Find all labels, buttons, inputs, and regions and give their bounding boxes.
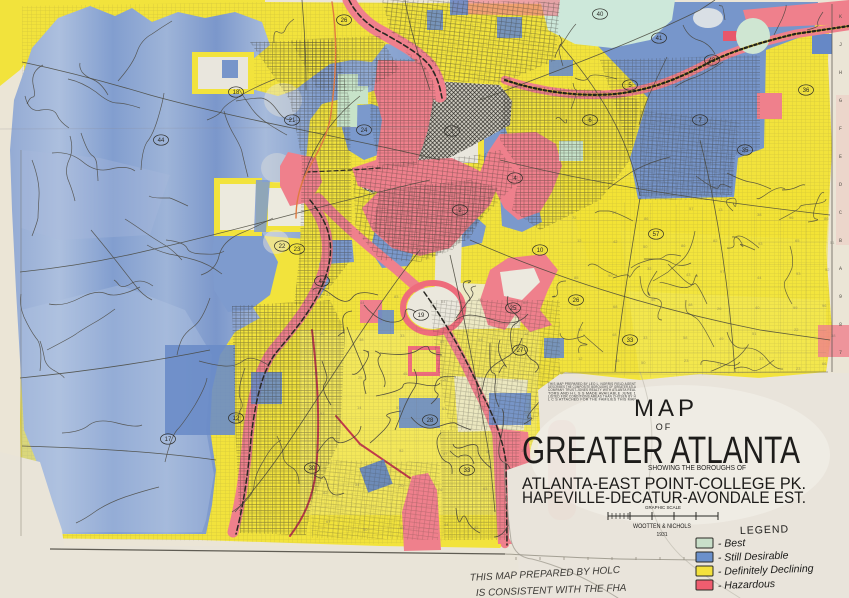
svg-text:93: 93 <box>758 241 763 246</box>
svg-text:56: 56 <box>651 297 656 302</box>
svg-text:40: 40 <box>755 305 760 310</box>
svg-text:47: 47 <box>486 449 491 454</box>
svg-text:74: 74 <box>717 362 722 367</box>
svg-text:69: 69 <box>478 297 483 302</box>
svg-text:12: 12 <box>577 238 582 243</box>
svg-text:53: 53 <box>314 371 319 376</box>
svg-text:20: 20 <box>399 483 404 488</box>
svg-text:76: 76 <box>438 487 443 492</box>
svg-text:50: 50 <box>643 244 648 249</box>
svg-text:50: 50 <box>363 527 368 532</box>
svg-text:44: 44 <box>444 522 449 527</box>
svg-text:- Hazardous: - Hazardous <box>718 578 776 592</box>
svg-text:44: 44 <box>757 275 762 280</box>
svg-text:29: 29 <box>524 410 529 415</box>
svg-text:38: 38 <box>359 337 364 342</box>
svg-text:33: 33 <box>627 338 634 344</box>
svg-text:31: 31 <box>326 292 331 297</box>
svg-text:1931: 1931 <box>656 532 667 538</box>
svg-text:J: J <box>839 42 842 48</box>
svg-text:12: 12 <box>578 356 583 361</box>
svg-text:65: 65 <box>795 238 800 243</box>
svg-text:20: 20 <box>320 331 325 336</box>
svg-text:40: 40 <box>597 12 604 18</box>
svg-text:12: 12 <box>233 416 240 422</box>
svg-text:63: 63 <box>442 406 447 411</box>
svg-text:14: 14 <box>357 405 362 410</box>
svg-text:HAPEVILLE-DECATUR-AVONDALE EST: HAPEVILLE-DECATUR-AVONDALE EST. <box>522 489 806 507</box>
svg-text:17: 17 <box>165 437 172 443</box>
svg-text:86: 86 <box>824 216 829 221</box>
svg-text:24: 24 <box>361 128 368 134</box>
svg-text:34: 34 <box>355 482 360 487</box>
svg-text:D: D <box>839 182 842 188</box>
svg-text:58: 58 <box>683 335 688 340</box>
svg-text:H: H <box>839 70 842 76</box>
svg-text:51: 51 <box>752 331 757 336</box>
svg-text:57: 57 <box>653 232 660 238</box>
svg-text:B: B <box>839 238 842 244</box>
svg-text:- Still Desirable: - Still Desirable <box>718 550 789 564</box>
svg-text:28: 28 <box>427 418 434 424</box>
svg-text:18: 18 <box>233 90 240 96</box>
svg-text:26: 26 <box>443 377 448 382</box>
svg-text:K: K <box>839 14 842 20</box>
svg-text:85: 85 <box>615 358 620 363</box>
svg-text:42: 42 <box>613 239 618 244</box>
svg-text:38: 38 <box>757 212 762 217</box>
svg-text:41: 41 <box>656 36 663 42</box>
svg-text:42: 42 <box>709 58 716 64</box>
svg-text:67: 67 <box>326 519 331 524</box>
svg-text:50: 50 <box>641 360 646 365</box>
svg-text:25: 25 <box>358 375 363 380</box>
svg-text:62: 62 <box>523 300 528 305</box>
svg-text:36: 36 <box>803 88 810 94</box>
svg-text:45: 45 <box>403 371 408 376</box>
svg-text:85: 85 <box>440 339 445 344</box>
svg-text:62: 62 <box>514 377 519 382</box>
svg-text:7: 7 <box>839 350 842 356</box>
svg-text:27: 27 <box>517 348 524 354</box>
svg-text:L C S ATTACHED FOR THE FAMILIE: L C S ATTACHED FOR THE FAMILIES THIS MAP <box>548 398 636 402</box>
svg-text:44: 44 <box>158 138 165 144</box>
svg-text:SHOWING THE BOROUGHS OF: SHOWING THE BOROUGHS OF <box>648 465 746 472</box>
svg-text:G: G <box>839 98 842 104</box>
svg-text:22: 22 <box>794 327 799 332</box>
svg-text:37: 37 <box>315 443 320 448</box>
svg-text:51: 51 <box>830 240 835 245</box>
svg-text:33: 33 <box>643 335 648 340</box>
svg-text:13: 13 <box>718 207 723 212</box>
svg-text:54: 54 <box>478 337 483 342</box>
svg-text:82: 82 <box>474 525 479 530</box>
svg-text:23: 23 <box>684 358 689 363</box>
svg-text:A: A <box>839 266 842 272</box>
svg-text:53: 53 <box>396 405 401 410</box>
svg-text:82: 82 <box>323 490 328 495</box>
svg-text:33: 33 <box>464 468 471 474</box>
svg-text:72: 72 <box>572 215 577 220</box>
svg-text:WOOTTEN & NICHOLS: WOOTTEN & NICHOLS <box>633 524 691 530</box>
svg-text:26: 26 <box>717 306 722 311</box>
svg-text:C: C <box>839 210 842 216</box>
svg-text:23: 23 <box>294 247 301 253</box>
svg-text:92: 92 <box>399 448 404 453</box>
svg-text:66: 66 <box>822 361 827 366</box>
svg-text:93: 93 <box>320 411 325 416</box>
svg-text:LEGEND: LEGEND <box>740 523 790 537</box>
svg-text:E: E <box>839 154 842 160</box>
svg-text:30: 30 <box>309 466 316 472</box>
svg-text:47: 47 <box>443 451 448 456</box>
svg-text:86: 86 <box>644 216 649 221</box>
svg-text:10: 10 <box>537 248 544 254</box>
svg-text:99: 99 <box>793 305 798 310</box>
svg-text:82: 82 <box>713 238 718 243</box>
svg-text:8: 8 <box>839 322 842 328</box>
svg-text:57: 57 <box>689 206 694 211</box>
svg-text:96: 96 <box>578 327 583 332</box>
svg-text:90: 90 <box>608 273 613 278</box>
svg-text:77: 77 <box>358 443 363 448</box>
svg-text:23: 23 <box>796 366 801 371</box>
svg-text:97: 97 <box>720 269 725 274</box>
svg-text:43: 43 <box>686 272 691 277</box>
svg-text:48: 48 <box>612 332 617 337</box>
svg-text:49: 49 <box>719 336 724 341</box>
svg-text:33: 33 <box>759 356 764 361</box>
svg-text:63: 63 <box>479 405 484 410</box>
svg-text:44: 44 <box>319 279 326 285</box>
svg-text:19: 19 <box>418 313 425 319</box>
svg-text:21: 21 <box>289 118 296 124</box>
svg-text:54: 54 <box>441 299 446 304</box>
svg-text:44: 44 <box>360 300 365 305</box>
svg-text:48: 48 <box>688 302 693 307</box>
svg-text:86: 86 <box>681 243 686 248</box>
svg-text:85: 85 <box>574 275 579 280</box>
svg-text:96: 96 <box>822 303 827 308</box>
svg-text:52: 52 <box>825 267 830 272</box>
svg-text:22: 22 <box>279 244 286 250</box>
svg-text:GRAPHIC SCALE: GRAPHIC SCALE <box>645 505 681 511</box>
svg-text:26: 26 <box>573 298 580 304</box>
svg-text:- Best: - Best <box>718 537 747 550</box>
svg-text:26: 26 <box>341 18 348 24</box>
svg-text:25: 25 <box>510 306 517 312</box>
svg-text:57: 57 <box>612 210 617 215</box>
svg-text:14: 14 <box>524 331 529 336</box>
svg-text:96: 96 <box>789 215 794 220</box>
svg-text:35: 35 <box>742 148 749 154</box>
svg-text:89: 89 <box>400 525 405 530</box>
svg-text:33: 33 <box>400 333 405 338</box>
svg-text:83: 83 <box>394 294 399 299</box>
svg-text:63: 63 <box>483 486 488 491</box>
svg-text:93: 93 <box>796 271 801 276</box>
svg-text:MAP: MAP <box>634 395 698 422</box>
svg-text:32: 32 <box>647 266 652 271</box>
svg-text:68: 68 <box>613 304 618 309</box>
svg-text:91: 91 <box>478 375 483 380</box>
svg-text:F: F <box>839 126 842 132</box>
svg-text:17: 17 <box>576 306 581 311</box>
svg-text:9: 9 <box>839 294 842 300</box>
